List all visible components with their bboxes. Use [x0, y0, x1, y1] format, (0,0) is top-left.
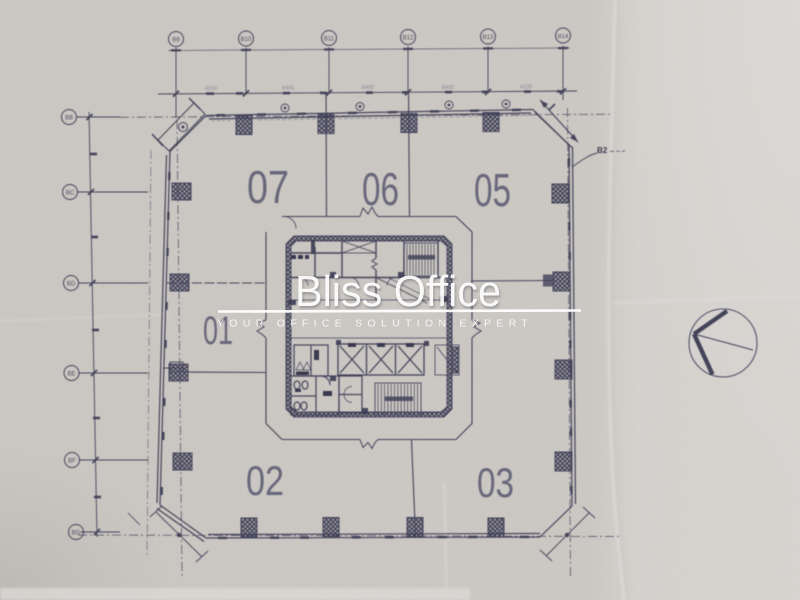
svg-text:Bliss Office: Bliss Office	[295, 268, 501, 316]
svg-text:YOUR OFFICE SOLUTION EXPERT: YOUR OFFICE SOLUTION EXPERT	[217, 319, 533, 330]
